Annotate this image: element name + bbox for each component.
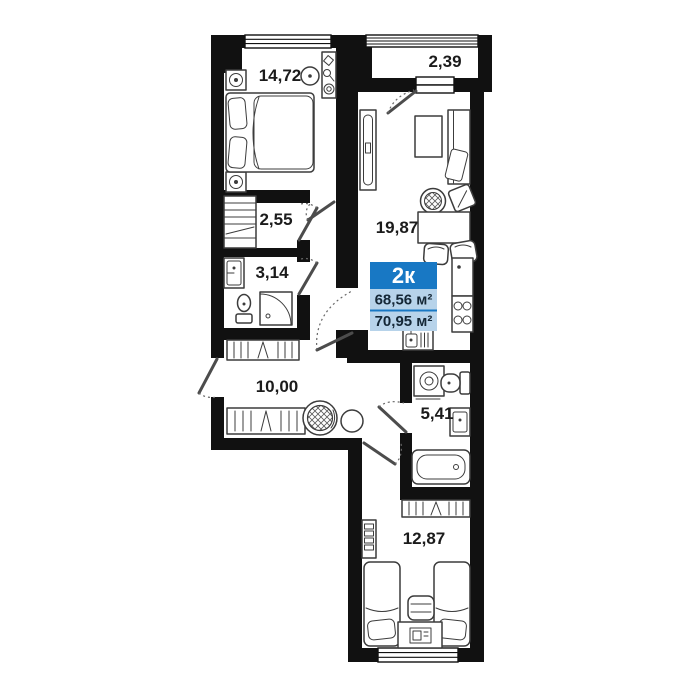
bathtub-icon	[412, 450, 470, 484]
room-label-living-kitchen: 19,87	[376, 218, 419, 237]
balcony-door	[388, 90, 416, 113]
nightstand-icon	[226, 172, 246, 192]
floor-plan: 14,72 2,39 19,87 2,55 3,14 10,00 5,41 12…	[0, 0, 700, 700]
room-label-bedroom-2: 12,87	[403, 529, 446, 548]
window-bedroom-top	[245, 35, 331, 48]
double-bed-icon	[226, 93, 314, 172]
room-label-balcony: 2,39	[428, 52, 461, 71]
coffee-table-icon	[415, 116, 442, 157]
bathroom-door	[299, 259, 317, 295]
hanging-chair-icon	[303, 401, 337, 435]
sofa-icon	[445, 110, 470, 184]
badge-area-1: 68,56 м²	[375, 292, 433, 309]
room-label-bathroom-2: 5,41	[420, 404, 453, 423]
dressing-table-icon	[322, 52, 336, 98]
room-label-bedroom: 14,72	[259, 66, 302, 85]
room-label-hallway: 10,00	[256, 377, 299, 396]
room-label-closet: 2,55	[259, 210, 292, 229]
entrance-door	[199, 359, 218, 398]
kitchen-sink-icon	[403, 330, 433, 350]
pouf-icon	[341, 410, 363, 432]
badge-room-type: 2к	[392, 263, 416, 288]
balcony-door-unit	[416, 77, 454, 93]
dining-table-icon	[418, 212, 470, 243]
shower-icon	[260, 292, 292, 325]
room-label-bathroom: 3,14	[255, 263, 289, 282]
area-badge: 2к 68,56 м² 70,95 м²	[370, 262, 437, 331]
washing-machine-icon	[414, 366, 444, 399]
floor-plan-canvas: 14,72 2,39 19,87 2,55 3,14 10,00 5,41 12…	[0, 0, 700, 700]
bookshelf-icon	[362, 520, 376, 558]
toilet-icon	[441, 372, 470, 394]
wardrobe-icon	[227, 340, 299, 360]
kitchen-counter-icon	[452, 258, 473, 296]
shelves-icon	[224, 196, 256, 248]
closet-door	[299, 204, 317, 241]
corridor-door	[364, 443, 401, 464]
sink-icon	[224, 258, 244, 288]
bedside-table-icon	[408, 596, 434, 620]
window-balcony-glazing	[366, 35, 478, 47]
badge-area-2: 70,95 м²	[375, 313, 433, 330]
single-bed-icon	[364, 562, 400, 646]
nightstand-icon	[226, 70, 246, 90]
stove-icon	[452, 296, 473, 332]
wardrobe-icon	[360, 110, 376, 190]
window-bedroom2-bottom	[378, 648, 458, 662]
wardrobe-icon	[227, 408, 305, 434]
toilet-icon	[236, 295, 252, 324]
desk-icon	[398, 622, 442, 648]
wardrobe-icon	[402, 500, 470, 517]
stool-icon	[301, 67, 319, 85]
bathroom2-door	[379, 402, 406, 432]
chair-icon	[423, 243, 448, 265]
